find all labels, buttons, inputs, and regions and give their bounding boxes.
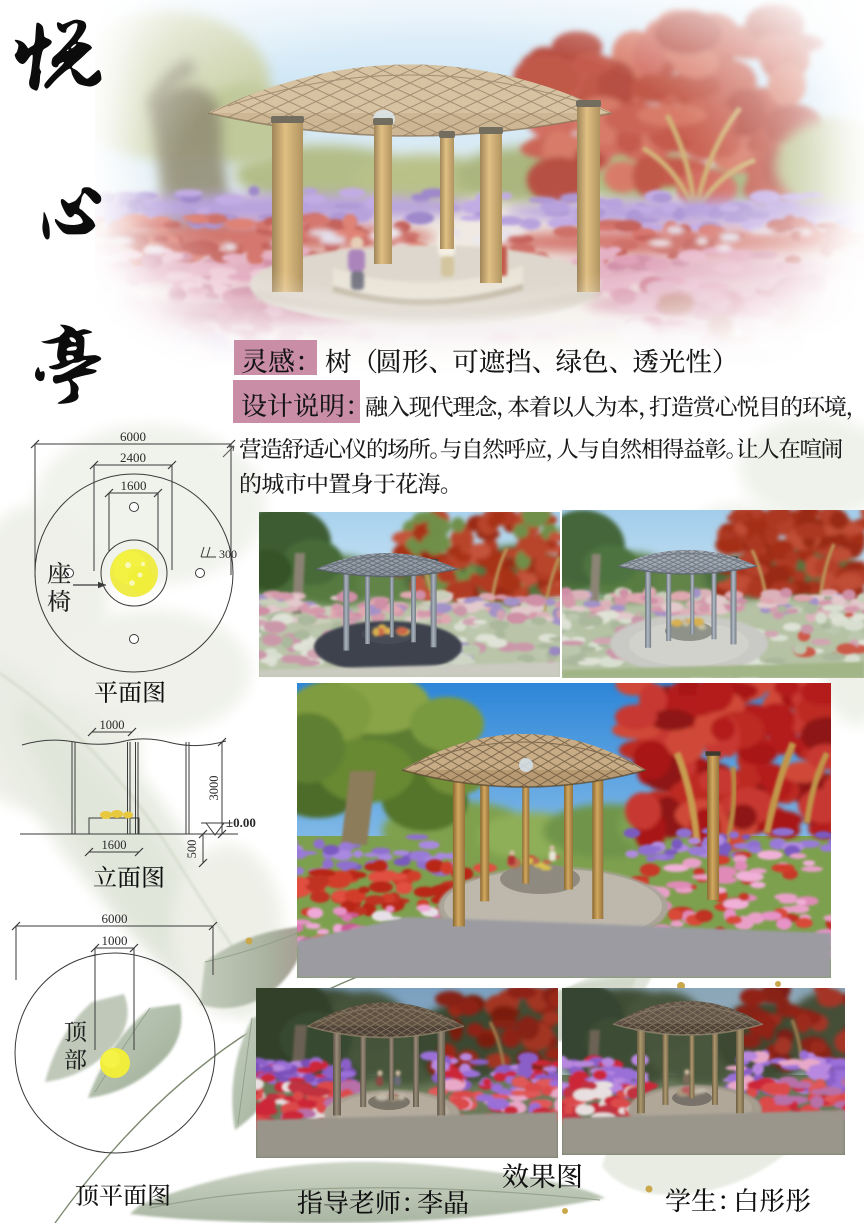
svg-text:2400: 2400	[120, 450, 146, 465]
svg-text:6000: 6000	[102, 911, 128, 926]
svg-text:1000: 1000	[100, 718, 125, 732]
svg-text:3000: 3000	[207, 776, 221, 801]
svg-text:300: 300	[219, 547, 237, 561]
svg-text:1600: 1600	[102, 838, 127, 852]
svg-text:±0.00: ±0.00	[226, 815, 256, 830]
svg-text:1600: 1600	[121, 478, 147, 493]
svg-text:6000: 6000	[120, 429, 146, 444]
svg-text:1000: 1000	[102, 933, 128, 948]
svg-text:500: 500	[185, 840, 199, 859]
